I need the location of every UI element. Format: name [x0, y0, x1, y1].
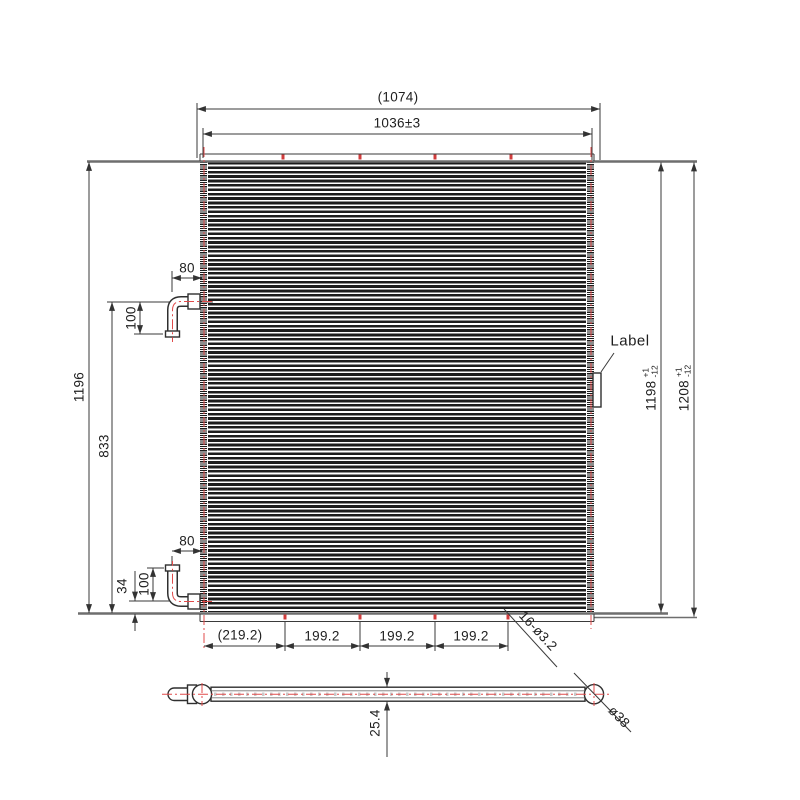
dim-bottom-pipe-base: 34 — [115, 578, 129, 594]
label-plate — [593, 353, 614, 407]
left-dimensions — [89, 162, 213, 631]
engineering-drawing-sheet: (1074) 1036±3 1196 833 80 100 80 100 34 … — [0, 0, 800, 800]
dim-thickness: 25.4 — [368, 709, 382, 736]
dim-bottom-pipe-rise: 100 — [137, 572, 151, 595]
dim-overall-height: 1208 +1 -12 — [675, 365, 694, 412]
dim-top-pipe-drop: 100 — [124, 306, 138, 329]
dim-segment-0: (219.2) — [218, 628, 263, 642]
header-centerlines — [204, 147, 591, 648]
dim-overall-height-value: 1208 — [677, 380, 691, 411]
dim-overall-width: (1074) — [378, 90, 419, 104]
dim-overall-height-tolerance: +1 -12 — [675, 365, 694, 377]
dim-segment-1: 199.2 — [304, 629, 339, 643]
dim-core-height-tolerance: +1 -12 — [642, 365, 661, 377]
dim-segment-3: 199.2 — [453, 629, 488, 643]
dim-core-height: 1198 +1 -12 — [642, 365, 661, 411]
dim-core-height-value: 1198 — [644, 381, 658, 411]
tube-position-ticks — [283, 155, 511, 620]
dim-fin-width: 1036±3 — [374, 116, 421, 130]
dim-pipe-span: 833 — [97, 434, 111, 457]
dim-top-pipe-offset: 80 — [179, 261, 195, 275]
dim-segment-2: 199.2 — [379, 629, 414, 643]
inlet-pipe-top — [166, 294, 213, 342]
top-dimensions — [197, 103, 600, 160]
outlet-pipe-bottom — [166, 561, 213, 609]
label-tag-text: Label — [610, 334, 649, 349]
dim-bottom-pipe-offset: 80 — [179, 534, 195, 548]
dim-total-height: 1196 — [72, 372, 86, 402]
core-outline — [78, 154, 697, 622]
